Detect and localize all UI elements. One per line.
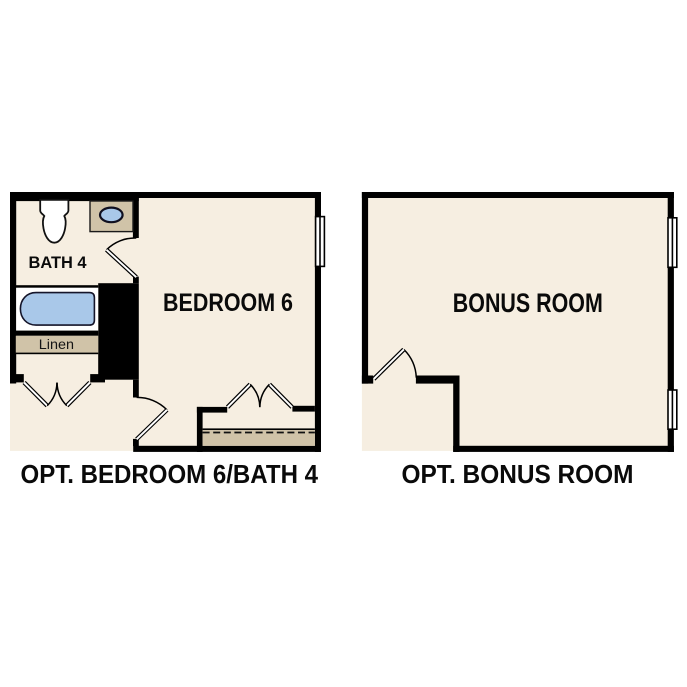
svg-text:BATH 4: BATH 4 bbox=[29, 253, 88, 272]
svg-text:BONUS ROOM: BONUS ROOM bbox=[453, 288, 603, 318]
svg-text:OPT. BEDROOM 6/BATH 4: OPT. BEDROOM 6/BATH 4 bbox=[21, 459, 319, 489]
svg-text:BEDROOM 6: BEDROOM 6 bbox=[163, 289, 293, 317]
svg-text:Linen: Linen bbox=[39, 336, 74, 352]
svg-text:OPT. BONUS ROOM: OPT. BONUS ROOM bbox=[402, 459, 634, 489]
